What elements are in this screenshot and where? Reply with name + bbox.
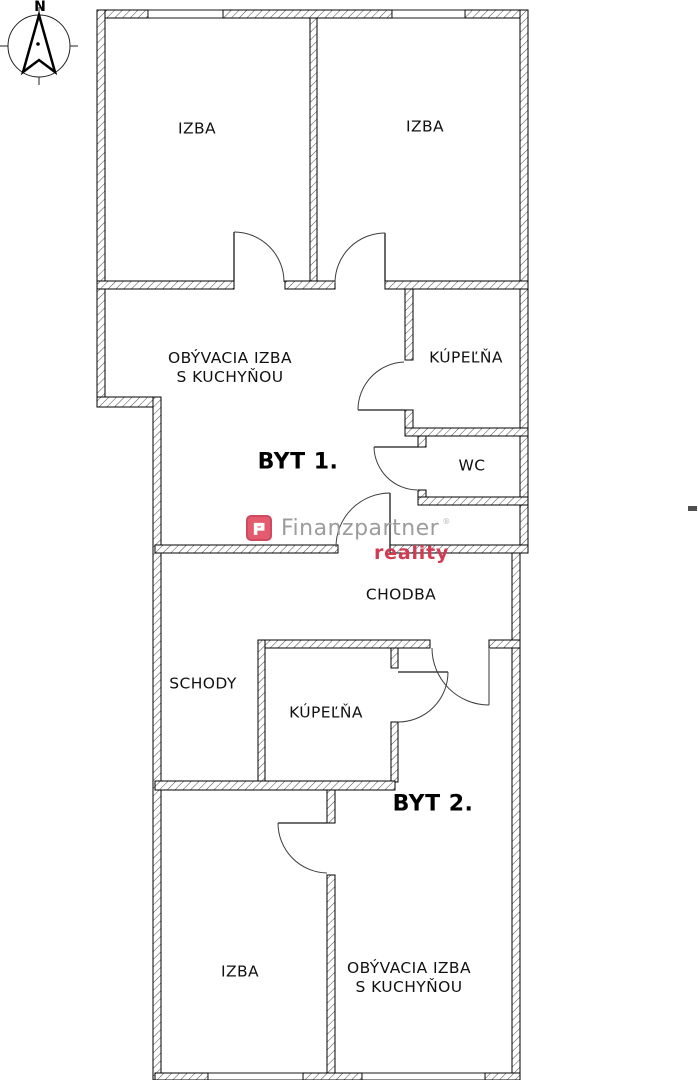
room-label-izba-nw: IZBA: [178, 120, 216, 139]
room-label-obyvacia-1-line2: S KUCHYŇOU: [168, 368, 292, 387]
window-obyvacia-2: [362, 1073, 485, 1080]
compass-north-label: N: [34, 0, 46, 15]
room-label-izba-s: IZBA: [221, 963, 259, 982]
door-arc-byt2-entry: [432, 648, 489, 705]
finanzpartner-glyph-icon: [251, 520, 268, 537]
door-arc-izba-s: [278, 823, 327, 873]
room-label-obyvacia-2: OBÝVACIA IZBA S KUCHYŇOU: [347, 959, 471, 997]
floor-plan-page: N IZBA IZBA OBÝVACIA IZBA S KUCHYŇOU KÚP…: [0, 0, 698, 1080]
door-arc-izba-ne: [335, 233, 385, 283]
door-arc-kupelna-1: [358, 362, 404, 410]
window-izba-s: [208, 1073, 303, 1080]
window-izba-ne: [392, 10, 465, 18]
door-arc-izba-nw: [234, 232, 284, 282]
room-label-izba-ne: IZBA: [406, 118, 444, 137]
watermark-brand-text: Finanzpartner: [281, 516, 439, 541]
door-arc-kupelna-2: [398, 672, 448, 722]
door-arc-wc: [374, 447, 417, 490]
room-label-chodba: CHODBA: [366, 586, 436, 605]
window-izba-nw: [148, 10, 223, 18]
walls: [97, 10, 528, 1080]
room-label-kupelna-1: KÚPEĽŇA: [429, 349, 503, 368]
room-label-schody: SCHODY: [169, 675, 236, 694]
apartment-label-byt1: BYT 1.: [258, 453, 339, 472]
edge-artifact: [688, 506, 697, 511]
room-label-obyvacia-1-line1: OBÝVACIA IZBA: [168, 349, 292, 368]
compass-rose: [0, 7, 78, 85]
registered-trademark-icon: ®: [442, 517, 450, 526]
watermark-subtitle-text: reality: [374, 542, 449, 564]
room-label-obyvacia-1: OBÝVACIA IZBA S KUCHYŇOU: [168, 349, 292, 387]
finanzpartner-logo-icon: [246, 515, 272, 541]
room-label-obyvacia-2-line1: OBÝVACIA IZBA: [347, 959, 471, 978]
watermark: Finanzpartner ®: [246, 515, 456, 541]
room-label-obyvacia-2-line2: S KUCHYŇOU: [347, 978, 471, 997]
room-label-wc: WC: [459, 457, 486, 476]
apartment-label-byt2: BYT 2.: [393, 795, 474, 814]
room-label-kupelna-2: KÚPEĽŇA: [289, 704, 363, 723]
